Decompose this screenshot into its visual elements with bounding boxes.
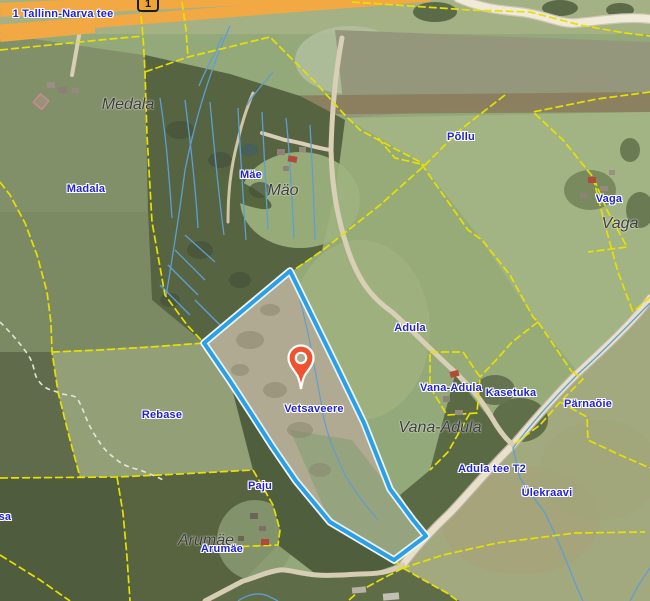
pond xyxy=(240,144,258,156)
map-tiles xyxy=(0,0,650,601)
location-marker-pin[interactable] xyxy=(286,344,316,392)
route-shield: 1 xyxy=(137,0,159,12)
map-canvas[interactable]: 1 1 Tallinn-Narva teeMedalaMadalaMäeMäoP… xyxy=(0,0,650,601)
